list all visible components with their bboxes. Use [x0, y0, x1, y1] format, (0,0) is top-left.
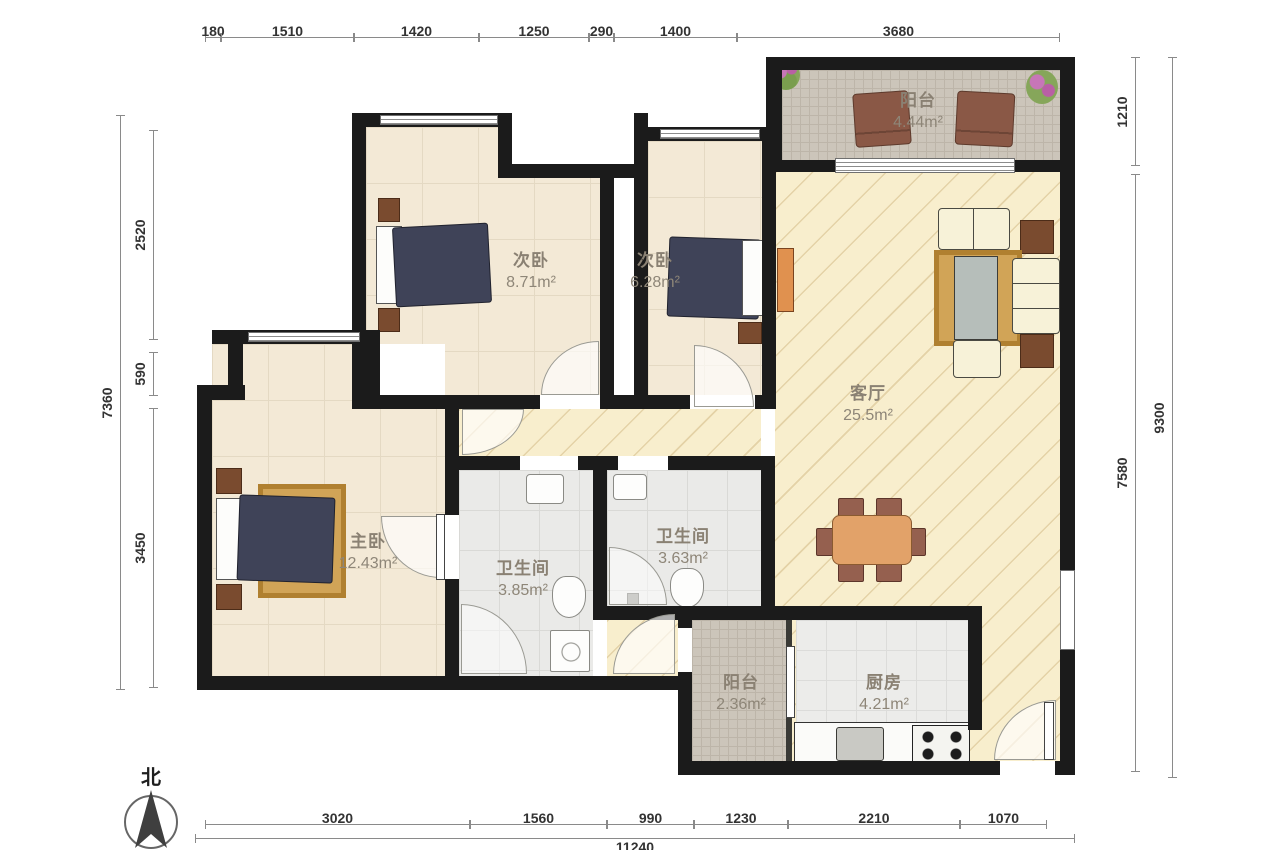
dim-value: 7580 [1115, 457, 1129, 488]
window [660, 129, 760, 139]
bathroom-sink-icon [526, 474, 564, 504]
dim-bottom-3: 1230 [694, 820, 788, 829]
dining-table-icon [832, 515, 912, 565]
dim-value: 2210 [858, 811, 889, 825]
room-label-kitchen: 厨房 4.21m² [824, 672, 944, 715]
floor-plan: 阳台 4.44m² 次卧 8.71m² 次卧 6.28m² 客厅 25.5m² … [0, 0, 1280, 850]
bed-pillows [742, 240, 764, 316]
nightstand-icon [378, 308, 400, 332]
side-table-icon [1020, 334, 1054, 368]
dim-value: 1250 [518, 24, 549, 38]
room-name: 卫生间 [463, 558, 583, 580]
window [835, 158, 1015, 173]
wall-segment [197, 385, 212, 690]
room-area: 6.28m² [600, 272, 710, 293]
dim-bottom-1: 1560 [470, 820, 607, 829]
room-label-bathroom-2: 卫生间 3.63m² [625, 526, 741, 569]
nightstand-icon [216, 584, 242, 610]
room-area: 8.71m² [471, 272, 591, 293]
dim-value: 1510 [272, 24, 303, 38]
dim-value: 3020 [322, 811, 353, 825]
room-area: 4.21m² [824, 694, 944, 715]
dim-value: 7360 [100, 387, 114, 418]
wall-segment [668, 456, 775, 470]
door-leaf [1044, 702, 1054, 760]
dim-right-0: 1210 [1131, 57, 1140, 166]
dim-value: 1230 [725, 811, 756, 825]
dim-bottom-2: 990 [607, 820, 694, 829]
room-area: 25.5m² [808, 405, 928, 426]
wall-segment [498, 164, 648, 178]
room-name: 次卧 [471, 250, 591, 272]
dim-bottom-5: 1070 [960, 820, 1047, 829]
nightstand-icon [378, 198, 400, 222]
dim-value: 3450 [133, 532, 147, 563]
door-leaf [436, 514, 445, 580]
room-label-balcony-bottom: 阳台 2.36m² [694, 672, 788, 715]
room-label-bedroom-2: 次卧 8.71m² [471, 250, 591, 293]
dim-value: 590 [133, 362, 147, 385]
room-name: 阳台 [858, 90, 978, 112]
dim-top-4: 290 [589, 33, 614, 42]
kitchen-sink-icon [836, 727, 884, 761]
wall-segment [1060, 57, 1075, 775]
building-notch [512, 110, 634, 164]
nightstand-icon [738, 322, 762, 344]
wall-segment [770, 57, 1075, 70]
dim-top-2: 1420 [354, 33, 479, 42]
dim-top-5: 1400 [614, 33, 737, 42]
dining-chair-icon [838, 562, 864, 582]
wall-segment [766, 57, 782, 172]
wall-segment [968, 606, 982, 730]
room-area: 2.36m² [694, 694, 788, 715]
wall-segment [352, 395, 540, 409]
room-area: 4.44m² [858, 112, 978, 133]
sofa-icon [1012, 258, 1060, 334]
dim-top-6: 3680 [737, 33, 1060, 42]
window [1060, 570, 1075, 650]
nightstand-icon [216, 468, 242, 494]
coffee-table-icon [954, 256, 998, 340]
dim-value: 1210 [1115, 96, 1129, 127]
compass-north-label: 北 [112, 766, 190, 790]
room-name: 阳台 [694, 672, 788, 694]
dim-value: 1560 [523, 811, 554, 825]
dim-value: 1070 [988, 811, 1019, 825]
dim-value: 290 [590, 24, 613, 38]
wall-segment [352, 113, 366, 409]
dim-left-0: 2520 [149, 130, 158, 340]
room-label-bedroom-3: 次卧 6.28m² [600, 250, 710, 293]
window [380, 115, 498, 125]
wall-segment [755, 395, 775, 409]
compass: 北 [112, 766, 190, 850]
plant-icon [1026, 70, 1058, 104]
wall-segment [761, 456, 775, 620]
room-name: 卫生间 [625, 526, 741, 548]
dim-bottom-total: 11240 [195, 834, 1075, 843]
dim-value: 1400 [660, 24, 691, 38]
dim-right-total: 9300 [1168, 57, 1177, 778]
dim-top-3: 1250 [479, 33, 589, 42]
armchair-icon [953, 340, 1001, 378]
sofa-icon [938, 208, 1010, 250]
room-name: 客厅 [808, 383, 928, 405]
room-name: 次卧 [600, 250, 710, 272]
stove-icon [912, 725, 970, 763]
dim-value: 1420 [401, 24, 432, 38]
room-name: 厨房 [824, 672, 944, 694]
wall-segment [197, 676, 692, 690]
wall-segment [445, 579, 459, 676]
wall-segment [678, 672, 692, 761]
washing-machine-icon [550, 630, 590, 672]
room-name: 主卧 [308, 531, 428, 553]
dim-value: 990 [639, 811, 662, 825]
room-label-bathroom-1: 卫生间 3.85m² [463, 558, 583, 601]
room-area: 3.63m² [625, 548, 741, 569]
dining-chair-icon [876, 562, 902, 582]
tv-console-icon [777, 248, 794, 312]
dim-top-1: 1510 [221, 33, 354, 42]
room-label-master: 主卧 12.43m² [308, 531, 428, 574]
dim-top-0: 180 [205, 33, 221, 42]
wall-segment [600, 395, 690, 409]
room-area: 12.43m² [308, 553, 428, 574]
wall-segment [593, 456, 607, 620]
dim-value: 11240 [613, 840, 657, 850]
wall-segment [678, 761, 1000, 775]
dim-bottom-4: 2210 [788, 820, 960, 829]
wall-segment [445, 409, 459, 515]
room-area: 3.85m² [463, 580, 583, 601]
wall-segment [450, 456, 520, 470]
compass-arrow-icon [112, 790, 190, 850]
side-table-icon [1020, 220, 1054, 254]
wall-segment [678, 620, 692, 628]
room-label-living: 客厅 25.5m² [808, 383, 928, 426]
wall-segment [366, 330, 380, 409]
toilet-icon [670, 568, 704, 608]
bathroom-sink-icon [613, 474, 647, 500]
dim-left-total: 7360 [116, 115, 125, 690]
dim-value: 9300 [1152, 402, 1166, 433]
dim-value: 2520 [133, 219, 147, 250]
room-label-balcony-top: 阳台 4.44m² [858, 90, 978, 133]
dim-right-1: 7580 [1131, 174, 1140, 772]
dim-left-1: 590 [149, 352, 158, 396]
dim-left-2: 3450 [149, 408, 158, 688]
window [248, 332, 360, 342]
dim-bottom-0: 3020 [205, 820, 470, 829]
dim-value: 3680 [883, 24, 914, 38]
